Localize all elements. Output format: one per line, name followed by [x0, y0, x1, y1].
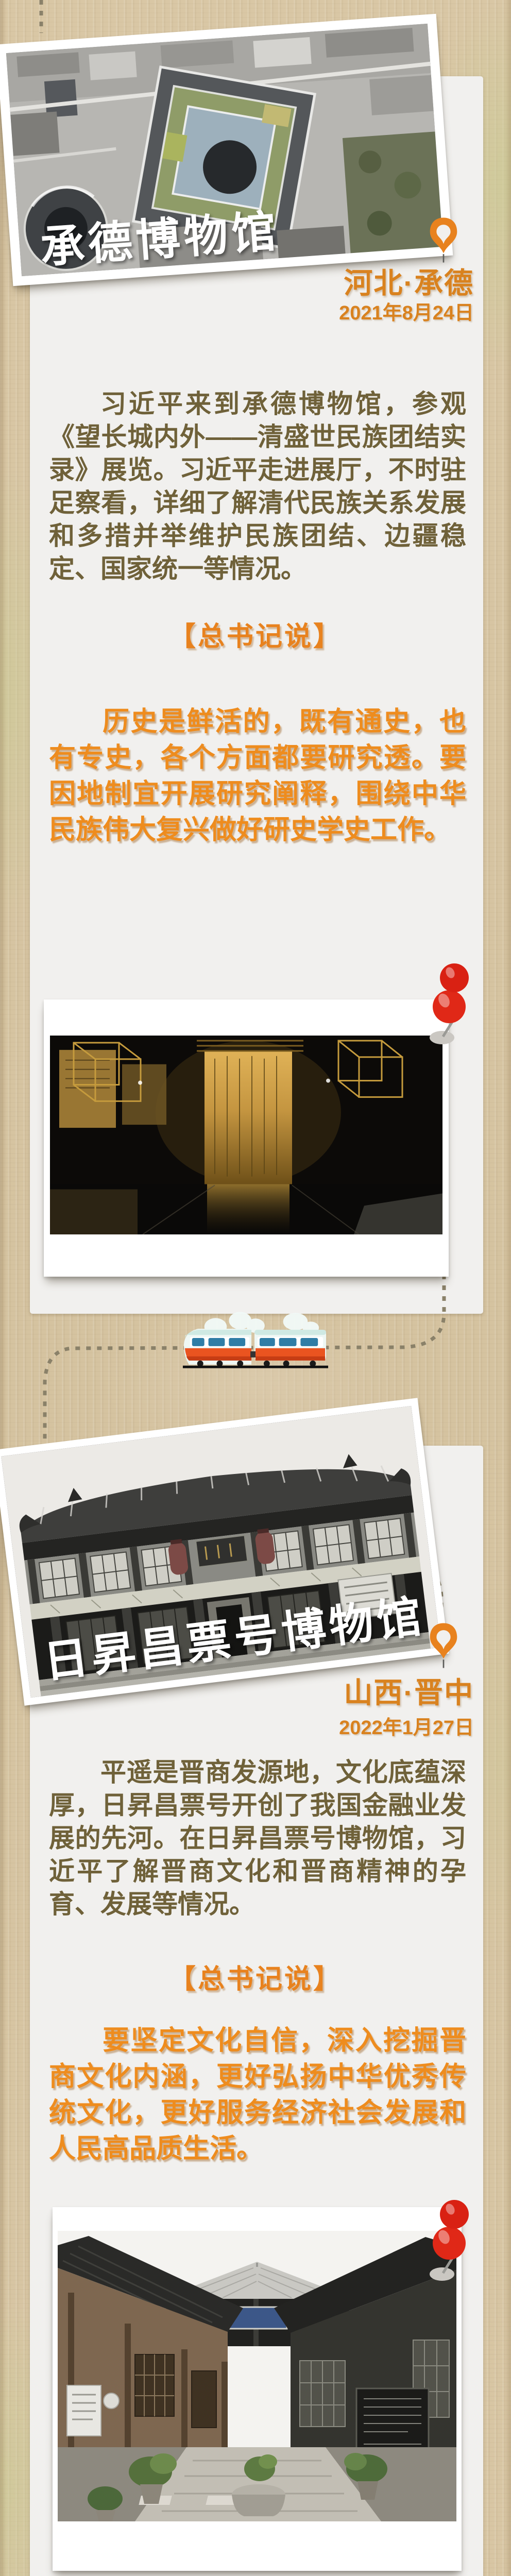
dashed-route-path	[0, 0, 511, 2576]
date-label-chengde: 2021年8月24日	[339, 303, 474, 324]
chengde-museum-aerial-photo: 承德博物馆	[6, 24, 443, 276]
paragraph-rishengchang: 平遥是晋商发源地，文化底蕴深厚，日昇昌票号开创了我国金融业发展的先河。在日昇昌票…	[49, 1756, 466, 1921]
paragraph-chengde: 习近平来到承德博物馆，参观《望长城内外——清盛世民族团结实录》展览。习近平走进展…	[49, 387, 466, 585]
red-pushpin-icon	[428, 2196, 474, 2289]
location-label-jinzhong: 山西·晋中	[344, 1677, 474, 1708]
polaroid-photo-chengde: 承德博物馆	[0, 14, 453, 286]
polaroid-photo-rishengchang: 日昇昌票号博物馆	[0, 1398, 449, 1705]
location-label-chengde: 河北·承德	[344, 268, 474, 299]
quote-chengde: 历史是鲜活的，既有通史，也有专史，各个方面都要研究透。要因地制宜开展研究阐释，围…	[49, 704, 466, 848]
courtyard-illustration	[58, 2231, 456, 2521]
quote-header-chengde: 【总书记说】	[0, 622, 511, 651]
rishengchang-facade-photo: 日昇昌票号博物馆	[1, 1406, 441, 1698]
date-label-jinzhong: 2022年1月27日	[339, 1718, 474, 1738]
exhibition-hall-photo	[50, 1036, 442, 1234]
infographic-page: 承德博物馆 河北·承德 2021年8月24日 习近平来到承德博物馆，参观《望长城…	[0, 0, 511, 2576]
train-icon	[179, 1311, 332, 1369]
polaroid-photo-exhibition-hall	[44, 999, 449, 1277]
location-pin-icon	[429, 216, 458, 264]
location-pin-icon	[429, 1622, 458, 1669]
courtyard-photo	[58, 2231, 456, 2521]
quote-header-rishengchang: 【总书记说】	[0, 1965, 511, 1994]
polaroid-photo-courtyard	[53, 2207, 462, 2571]
quote-rishengchang: 要坚定文化自信，深入挖掘晋商文化内涵，更好弘扬中华优秀传统文化，更好服务经济社会…	[49, 2023, 466, 2167]
red-pushpin-icon	[428, 959, 474, 1052]
exhibition-hall-illustration	[50, 1036, 442, 1234]
